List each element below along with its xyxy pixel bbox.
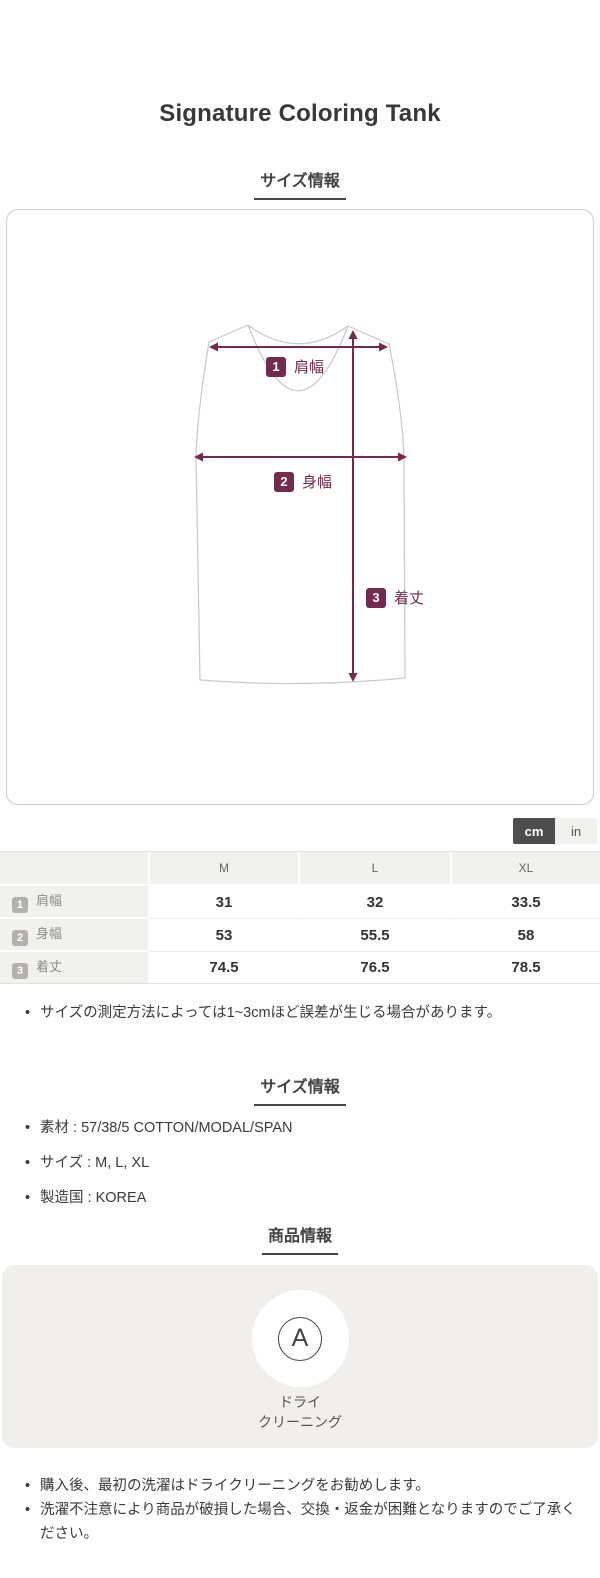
cell-shoulder-m: 31 bbox=[148, 886, 298, 919]
size-table: M L XL 1肩幅 31 32 33.5 2身幅 53 55.5 58 3着丈… bbox=[0, 851, 600, 984]
col-header-xl: XL bbox=[450, 852, 600, 886]
label-1-badge: 1 bbox=[266, 357, 286, 377]
table-row: 1肩幅 31 32 33.5 bbox=[0, 886, 600, 919]
label-3-text: 着丈 bbox=[394, 587, 424, 608]
cell-length-m: 74.5 bbox=[148, 952, 298, 983]
body-width-label: 2 身幅 bbox=[274, 471, 332, 492]
size-tolerance-note: サイズの測定方法によっては1~3cmほど誤差が生じる場合があります。 bbox=[0, 1001, 600, 1025]
cell-length-l: 76.5 bbox=[298, 952, 450, 983]
col-header-l: L bbox=[298, 852, 450, 886]
care-label-line2: クリーニング bbox=[2, 1412, 598, 1432]
label-2-text: 身幅 bbox=[302, 471, 332, 492]
shoulder-width-label: 1 肩幅 bbox=[266, 356, 324, 377]
care-notes-list: 購入後、最初の洗濯はドライクリーニングをお勧めします。 洗濯不注意により商品が破… bbox=[0, 1474, 600, 1546]
care-label: ドライ クリーニング bbox=[2, 1392, 598, 1432]
page-title: Signature Coloring Tank bbox=[0, 0, 600, 131]
cell-shoulder-xl: 33.5 bbox=[450, 886, 600, 919]
care-note-1: 購入後、最初の洗濯はドライクリーニングをお勧めします。 bbox=[0, 1474, 600, 1498]
label-3-badge: 3 bbox=[366, 588, 386, 608]
cell-body-l: 55.5 bbox=[298, 919, 450, 952]
row-1-badge: 1 bbox=[12, 897, 28, 913]
length-label: 3 着丈 bbox=[366, 587, 424, 608]
row-header-length: 3着丈 bbox=[0, 952, 148, 983]
row-header-shoulder: 1肩幅 bbox=[0, 886, 148, 919]
care-note-2: 洗濯不注意により商品が破損した場合、交換・返金が困難となりますのでご了承ください… bbox=[0, 1498, 600, 1546]
care-circle: A bbox=[252, 1290, 349, 1387]
size-table-corner-cell bbox=[0, 852, 148, 886]
cm-button[interactable]: cm bbox=[513, 818, 555, 844]
label-2-badge: 2 bbox=[274, 472, 294, 492]
cell-body-m: 53 bbox=[148, 919, 298, 952]
row-1-label: 肩幅 bbox=[36, 893, 62, 908]
care-label-line1: ドライ bbox=[2, 1392, 598, 1412]
size-info-heading: サイズ情報 bbox=[254, 171, 346, 200]
spec-info-heading: サイズ情報 bbox=[254, 1077, 346, 1106]
tank-top-diagram bbox=[7, 210, 593, 804]
care-instruction-panel: A ドライ クリーニング bbox=[2, 1265, 598, 1448]
spec-list: 素材 : 57/38/5 COTTON/MODAL/SPAN サイズ : M, … bbox=[0, 1116, 600, 1210]
row-3-badge: 3 bbox=[12, 963, 28, 979]
table-row: 2身幅 53 55.5 58 bbox=[0, 919, 600, 952]
row-2-badge: 2 bbox=[12, 930, 28, 946]
spec-sizes: サイズ : M, L, XL bbox=[0, 1151, 600, 1175]
row-header-body: 2身幅 bbox=[0, 919, 148, 952]
row-3-label: 着丈 bbox=[36, 959, 62, 974]
spec-country: 製造国 : KOREA bbox=[0, 1186, 600, 1210]
cell-body-xl: 58 bbox=[450, 919, 600, 952]
unit-toggle: cm in bbox=[0, 818, 597, 844]
col-header-m: M bbox=[148, 852, 298, 886]
size-note-list: サイズの測定方法によっては1~3cmほど誤差が生じる場合があります。 bbox=[0, 1001, 600, 1025]
dry-clean-icon: A bbox=[278, 1317, 322, 1361]
cell-shoulder-l: 32 bbox=[298, 886, 450, 919]
label-1-text: 肩幅 bbox=[294, 356, 324, 377]
product-info-heading: 商品情報 bbox=[262, 1226, 338, 1255]
cell-length-xl: 78.5 bbox=[450, 952, 600, 983]
row-2-label: 身幅 bbox=[36, 926, 62, 941]
size-table-header-row: M L XL bbox=[0, 852, 600, 886]
size-diagram-panel: 1 肩幅 2 身幅 3 着丈 bbox=[6, 209, 594, 805]
table-row: 3着丈 74.5 76.5 78.5 bbox=[0, 952, 600, 983]
in-button[interactable]: in bbox=[555, 818, 597, 844]
spec-material: 素材 : 57/38/5 COTTON/MODAL/SPAN bbox=[0, 1116, 600, 1140]
